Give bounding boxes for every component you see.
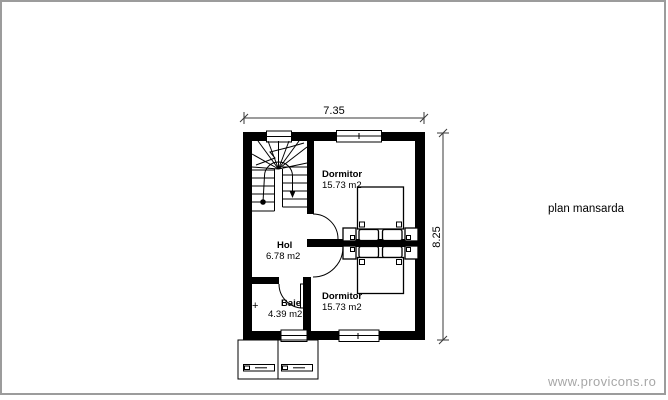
baie-cross-marker: + (252, 300, 258, 312)
room-area-dormitor2: 15.73 m2 (322, 302, 362, 313)
window-top-dormitor1 (337, 131, 382, 143)
balcony-outline (238, 340, 318, 379)
dimension-width-label: 7.35 (323, 105, 344, 117)
plan-title: plan mansarda (548, 203, 625, 215)
wall-baie-right (303, 277, 311, 331)
website-watermark: www.provicons.ro (547, 374, 656, 389)
floorplan-canvas: 7.35 8.25 Dormitor 15.73 m2 Hol 6.78 m2 … (0, 0, 668, 400)
room-name-baie: Baie (281, 298, 301, 309)
pillow (383, 230, 403, 241)
bed-dormitor1 (343, 187, 418, 241)
door-dormitor1-arc (313, 214, 338, 239)
stair-well (275, 169, 283, 211)
pillow (383, 247, 403, 258)
door-dormitor2-arc (313, 247, 343, 277)
wall-hol-baie (252, 277, 279, 284)
dimension-height-label: 8.25 (431, 226, 443, 247)
room-area-dormitor1: 15.73 m2 (322, 180, 362, 191)
stair-winder-fan (252, 141, 307, 169)
room-name-hol: Hol (277, 240, 292, 251)
staircase (252, 141, 307, 211)
wall-stairs-dormitor1 (307, 141, 314, 214)
pillow (359, 247, 379, 258)
dimension-right: 8.25 (431, 129, 449, 344)
pillow (359, 230, 379, 241)
stair-arrowhead (290, 191, 296, 198)
room-area-baie: 4.39 m2 (268, 309, 302, 320)
room-name-dormitor2: Dormitor (322, 291, 362, 302)
window-bottom-dormitor2 (339, 330, 379, 342)
window-top-stairs (267, 131, 292, 142)
room-name-dormitor1: Dormitor (322, 169, 362, 180)
dimension-top: 7.35 (240, 105, 428, 124)
stair-treads-right (283, 167, 308, 207)
bed-dormitor2 (343, 246, 418, 294)
room-area-hol: 6.78 m2 (266, 251, 300, 262)
